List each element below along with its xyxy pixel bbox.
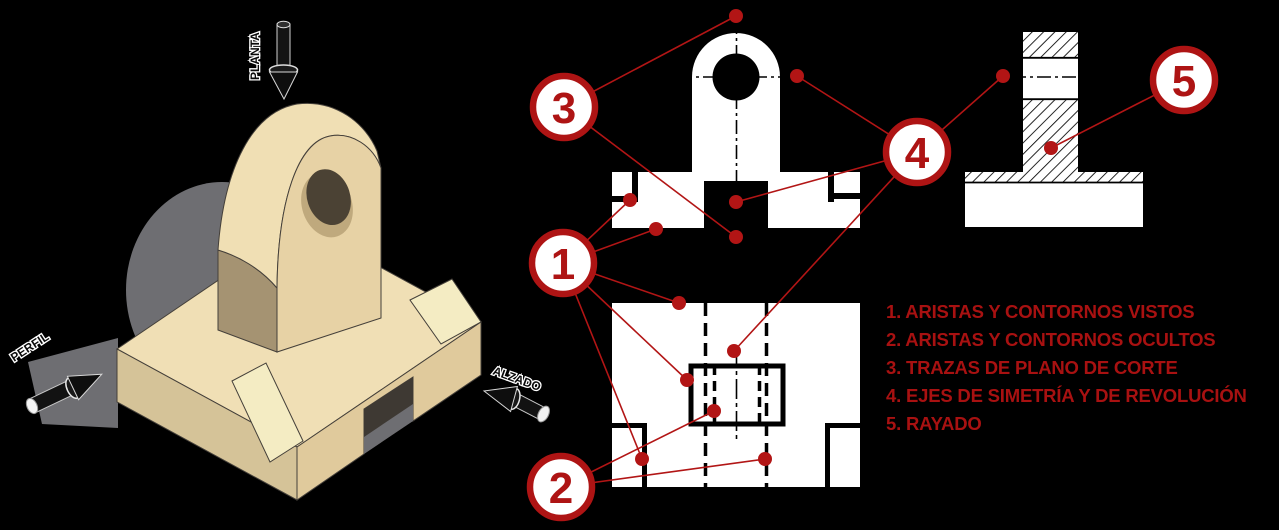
- leader-dot: [623, 193, 637, 207]
- leader-dot: [680, 373, 694, 387]
- legend-item-2: 2. ARISTAS Y CONTORNOS OCULTOS: [886, 329, 1215, 350]
- planta-label: PLANTA: [248, 32, 262, 80]
- leader-dot: [649, 222, 663, 236]
- leader-dot: [729, 195, 743, 209]
- front-view-corner-step-right-h: [828, 193, 860, 199]
- callout-3: 3: [533, 76, 595, 138]
- planta-view-arrow: PLANTA: [248, 21, 298, 99]
- legend-item-5: 5. RAYADO: [886, 413, 982, 434]
- legend: 1. ARISTAS Y CONTORNOS VISTOS 2. ARISTAS…: [886, 301, 1247, 434]
- legend-item-4: 4. EJES DE SIMETRÍA Y DE REVOLUCIÓN: [886, 385, 1247, 406]
- plan-view-drawing: [612, 303, 860, 487]
- section-base-hatch-strip: [965, 172, 1143, 182]
- leader-dot: [996, 69, 1010, 83]
- callout-number: 5: [1172, 57, 1196, 106]
- callout-1: 1: [532, 232, 594, 294]
- leader-dot: [758, 452, 772, 466]
- leader-dot: [707, 404, 721, 418]
- legend-item-1: 1. ARISTAS Y CONTORNOS VISTOS: [886, 301, 1194, 322]
- section-base-body: [965, 182, 1143, 227]
- legend-item-3: 3. TRAZAS DE PLANO DE CORTE: [886, 357, 1178, 378]
- callout-number: 1: [551, 240, 575, 289]
- alzado-view-arrow: ALZADO: [484, 364, 552, 424]
- diagram-page: PLANTA PERFIL ALZADO: [0, 0, 1279, 530]
- leader-dot: [729, 230, 743, 244]
- section-upper-hatch: [1023, 32, 1078, 57]
- leader-dot: [727, 344, 741, 358]
- callout-5: 5: [1153, 49, 1215, 111]
- leader-dot: [672, 296, 686, 310]
- callout-4: 4: [886, 121, 948, 183]
- leader-dot: [729, 9, 743, 23]
- diagram-canvas: PLANTA PERFIL ALZADO: [0, 0, 1279, 530]
- isometric-model: [28, 103, 481, 500]
- callout-number: 3: [552, 84, 576, 133]
- section-view-drawing: [965, 32, 1143, 227]
- callout-number: 2: [549, 464, 573, 513]
- callout-number: 4: [905, 129, 930, 178]
- section-hole-gap: [1023, 57, 1078, 100]
- leader-dot: [790, 69, 804, 83]
- section-lower-hatch: [1023, 100, 1078, 172]
- callout-2: 2: [530, 456, 592, 518]
- leader-dot: [1044, 141, 1058, 155]
- planta-arrow-cap: [277, 21, 290, 27]
- planta-arrow-icon: [277, 24, 290, 70]
- leader-dot: [635, 452, 649, 466]
- planta-arrow-tip: [270, 72, 298, 99]
